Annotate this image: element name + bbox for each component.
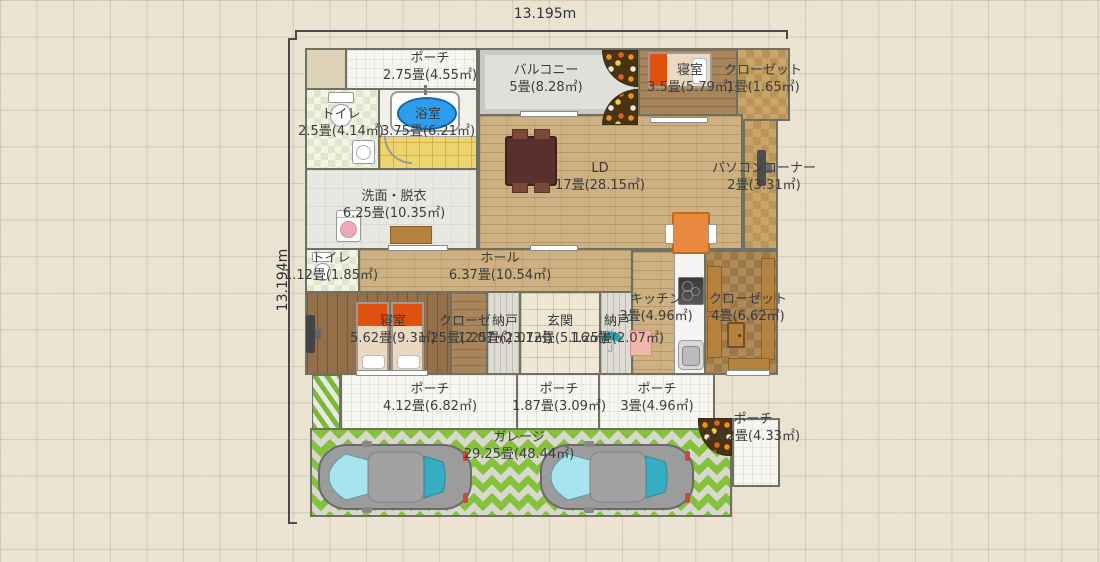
dining-table-icon[interactable] [505,136,557,186]
toilet-sink-icon[interactable] [352,140,375,164]
room-label: トイレ1.12畳(1.85㎡) [284,250,378,284]
room-label: パソコンコーナー2畳(3.31㎡) [712,160,816,194]
room-label: ポーチ4.12畳(6.82㎡) [383,381,477,415]
window-hall-west[interactable] [388,245,448,251]
desk-icon[interactable] [672,212,710,254]
room-label: LD17畳(28.15㎡) [555,160,645,194]
room-label: ポーチ2.62畳(4.33㎡) [706,411,800,445]
room-label: ポーチ1.87畳(3.09㎡) [512,381,606,415]
window-closet-large[interactable] [726,370,770,376]
kitchen-sink-icon[interactable] [678,340,704,370]
window-balcony[interactable] [520,111,578,117]
window-bedroom-lower[interactable] [356,370,428,376]
room-label: ポーチ2.75畳(4.55㎡) [383,50,477,84]
room-label: ポーチ3畳(4.96㎡) [620,381,693,415]
dimension-width-tick-right [786,30,788,39]
floor-plan-canvas: 13.195m 13.194m [0,0,1100,562]
car-icon[interactable] [316,440,474,514]
room-exterior-strip [305,48,347,90]
room-label: 寝室3.5畳(5.79㎡) [647,62,733,96]
room-label: ホール6.37畳(10.54㎡) [449,250,551,284]
dimension-height-tick-top [288,38,297,40]
room-label: 洗面・脱衣6.25畳(10.35㎡) [343,188,445,222]
garage-apron-hatch [312,375,340,431]
door-icon[interactable] [727,322,745,348]
room-label: トイレ2.5畳(4.14㎡) [298,106,384,140]
room-label: 浴室3.75畳(6.21㎡) [381,106,475,140]
room-label: ガレージ29.25畳(48.44㎡) [464,429,575,463]
room-label: クローゼット1畳(1.65㎡) [724,62,802,96]
dimension-width-label: 13.195m [514,6,577,22]
bath-mat-icon[interactable] [390,226,432,244]
dimension-height-tick-bottom [288,522,297,524]
room-label: バルコニー5畳(8.28㎡) [509,62,582,96]
tv-icon[interactable] [306,315,315,353]
window-bedroom-upper[interactable] [650,117,708,123]
room-label: クローゼット4畳(6.62㎡) [709,291,787,325]
room-label: キッチン3畳(4.96㎡) [619,291,692,325]
dimension-width-line [295,30,788,32]
